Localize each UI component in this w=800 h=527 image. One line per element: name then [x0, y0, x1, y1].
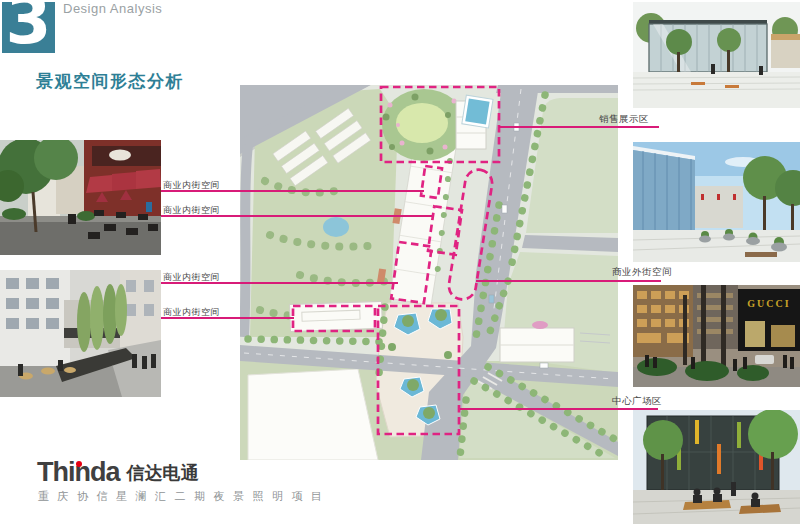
pink-feature [532, 321, 548, 329]
section-label: Design Analysis [63, 1, 162, 16]
label-inner-street-1: 商业内街空间 [163, 179, 220, 192]
company-logo: Thinda信达电通 [37, 459, 199, 487]
project-name: 重庆协信星澜汇二期夜景照明项目 [38, 489, 331, 504]
photo-outer-street-planters [633, 142, 800, 262]
annotation-line-outer [476, 280, 661, 282]
slide-canvas: { "slide": { "section_number": "3", "sec… [0, 0, 800, 527]
annotation-line-center [460, 408, 658, 410]
label-sales-display-area: 销售展示区 [599, 113, 649, 126]
photo-colorful-facade-plaza [633, 410, 800, 524]
label-outer-street: 商业外街空间 [612, 266, 672, 279]
logo-red-dot [76, 461, 82, 467]
pond [323, 217, 349, 237]
section-number: 3 [2, 2, 55, 53]
label-inner-street-2: 商业内街空间 [163, 204, 220, 217]
vacant-parcel [248, 369, 378, 460]
photo-cafe-street [0, 140, 161, 255]
annotation-line-sales [499, 126, 659, 128]
gucci-sign-text: GUCCI [747, 298, 790, 309]
photo-gucci-street: GUCCI [633, 285, 800, 387]
page-title: 景观空间形态分析 [36, 70, 184, 93]
photo-pedestrian-inner-street [0, 270, 161, 397]
section-number-badge: 3 [2, 2, 55, 53]
site-plan [240, 85, 618, 460]
logo-cn-text: 信达电通 [127, 463, 199, 483]
glass-building [633, 150, 695, 244]
photo-glass-pavilion [633, 2, 800, 108]
label-inner-street-3: 商业内街空间 [163, 271, 220, 284]
label-central-plaza: 中心广场区 [612, 395, 662, 408]
pool [465, 99, 489, 125]
label-inner-street-4: 商业内街空间 [163, 306, 220, 319]
